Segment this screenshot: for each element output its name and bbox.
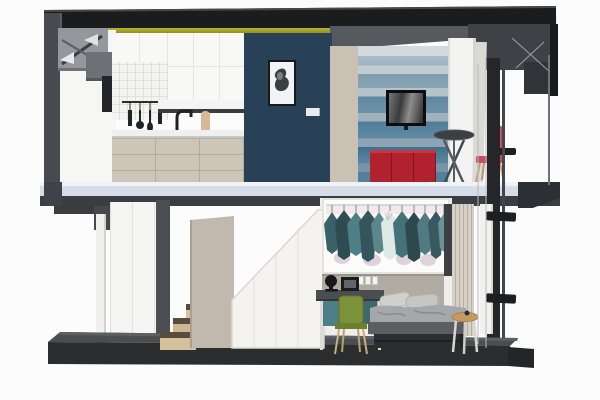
sloped-wardrobe xyxy=(230,202,326,350)
roof-tie-line xyxy=(548,55,550,185)
closet-side-trim xyxy=(444,204,452,276)
desk-photo-inner xyxy=(344,280,356,288)
tension-cables xyxy=(470,58,510,350)
upper-cabinet-left xyxy=(112,33,168,62)
light-switch xyxy=(306,108,320,116)
storage-volume xyxy=(190,216,234,348)
base-cabinets xyxy=(112,138,244,186)
outlet-3 xyxy=(372,276,378,285)
tv-stand xyxy=(404,126,408,130)
desk-leg-left xyxy=(320,298,323,350)
tv xyxy=(386,90,426,126)
green-desk-chair xyxy=(332,296,370,356)
beige-vase xyxy=(201,111,210,132)
countertop xyxy=(112,130,244,138)
closet-hanging-clothes xyxy=(324,200,448,274)
wood-side-panel xyxy=(330,46,361,186)
red-media-console xyxy=(370,150,436,183)
slab-left-cap xyxy=(44,182,62,206)
loft-section-render xyxy=(0,0,600,400)
outlet-2 xyxy=(365,276,371,285)
upper-cabinet-right xyxy=(168,33,244,100)
artwork-abstract-shape xyxy=(270,64,294,102)
support-column xyxy=(96,214,106,334)
open-shelf xyxy=(158,100,244,113)
